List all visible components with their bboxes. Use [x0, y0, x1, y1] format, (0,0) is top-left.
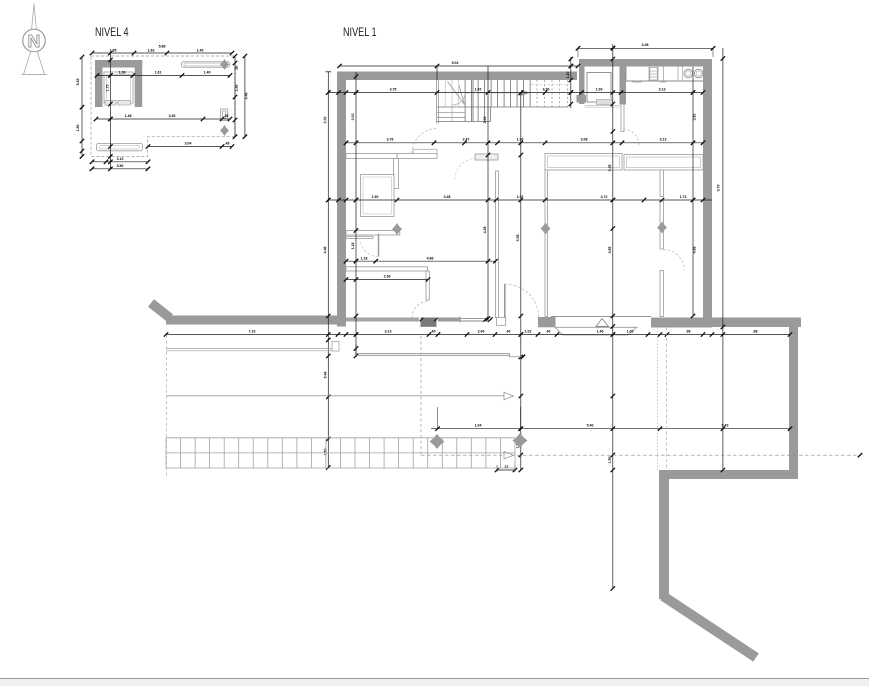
svg-text:1.40: 1.40: [204, 71, 211, 75]
svg-text:3.13: 3.13: [660, 138, 667, 142]
svg-text:NIVEL 1: NIVEL 1: [343, 25, 377, 39]
svg-text:3.48: 3.48: [608, 165, 612, 172]
svg-text:2.02: 2.02: [483, 117, 487, 124]
svg-text:3.13: 3.13: [385, 330, 392, 334]
svg-text:1.75: 1.75: [106, 85, 110, 92]
svg-text:3.10: 3.10: [117, 157, 124, 161]
svg-text:1.90: 1.90: [543, 88, 550, 92]
svg-text:1.40: 1.40: [197, 48, 204, 52]
svg-text:.40: .40: [546, 330, 551, 334]
svg-text:3.13: 3.13: [659, 88, 666, 92]
svg-text:5.45: 5.45: [76, 79, 80, 86]
svg-text:5.40: 5.40: [587, 424, 594, 428]
svg-text:2.36: 2.36: [384, 275, 391, 279]
svg-text:3.30: 3.30: [169, 114, 176, 118]
svg-text:1.20: 1.20: [566, 72, 570, 79]
svg-text:5.88: 5.88: [159, 44, 166, 48]
svg-text:2.47: 2.47: [463, 138, 470, 142]
svg-text:1.18: 1.18: [361, 256, 368, 260]
svg-text:1.09: 1.09: [596, 88, 603, 92]
svg-text:3.48: 3.48: [444, 195, 451, 199]
svg-text:.48: .48: [225, 142, 230, 146]
svg-text:1.50: 1.50: [323, 449, 327, 456]
svg-text:7.10: 7.10: [249, 330, 256, 334]
svg-text:3.75: 3.75: [390, 88, 397, 92]
svg-text:N: N: [28, 31, 41, 51]
svg-text:.98: .98: [753, 330, 758, 334]
svg-text:9.04: 9.04: [452, 61, 459, 65]
svg-text:1.48: 1.48: [125, 114, 132, 118]
svg-text:2.02: 2.02: [323, 117, 327, 124]
svg-text:2.02: 2.02: [351, 114, 355, 121]
svg-text:.98: .98: [686, 330, 691, 334]
svg-text:.50: .50: [235, 66, 239, 71]
svg-text:2.40: 2.40: [478, 330, 485, 334]
svg-text:1.50: 1.50: [608, 457, 612, 464]
svg-text:1.46: 1.46: [597, 330, 604, 334]
svg-text:1.00: 1.00: [627, 330, 634, 334]
svg-text:1.63: 1.63: [148, 48, 155, 52]
svg-text:1.18: 1.18: [351, 243, 355, 250]
svg-text:4.68: 4.68: [693, 247, 697, 254]
svg-text:4.72: 4.72: [601, 195, 608, 199]
svg-text:1.73: 1.73: [680, 195, 687, 199]
svg-text:1.95: 1.95: [110, 48, 117, 52]
svg-text:NIVEL 4: NIVEL 4: [95, 25, 129, 39]
svg-text:1.50: 1.50: [76, 125, 80, 132]
svg-text:1.61: 1.61: [155, 71, 162, 75]
svg-text:3.48: 3.48: [642, 43, 649, 47]
svg-text:4.38: 4.38: [483, 227, 487, 234]
svg-text:1.08: 1.08: [119, 71, 126, 75]
svg-text:1.40: 1.40: [235, 85, 239, 92]
svg-text:3.76: 3.76: [387, 138, 394, 142]
svg-text:3.08: 3.08: [581, 138, 588, 142]
svg-text:4.38: 4.38: [516, 235, 520, 242]
svg-text:3.04: 3.04: [185, 142, 192, 146]
svg-text:3.48: 3.48: [244, 93, 248, 100]
svg-text:1.04: 1.04: [475, 424, 482, 428]
svg-text:4.68: 4.68: [608, 247, 612, 254]
svg-text:.40: .40: [506, 330, 511, 334]
svg-text:4.48: 4.48: [323, 247, 327, 254]
svg-text:1.02: 1.02: [525, 330, 532, 334]
svg-text:2.62: 2.62: [693, 114, 697, 121]
svg-text:5.46: 5.46: [323, 372, 327, 379]
svg-text:9.70: 9.70: [717, 185, 721, 192]
svg-text:3.50: 3.50: [117, 164, 124, 168]
svg-text:.40: .40: [431, 330, 436, 334]
svg-text:1.90: 1.90: [372, 195, 379, 199]
svg-text:.36: .36: [224, 114, 229, 118]
svg-text:1.47: 1.47: [475, 88, 482, 92]
svg-text:4.86: 4.86: [427, 256, 434, 260]
